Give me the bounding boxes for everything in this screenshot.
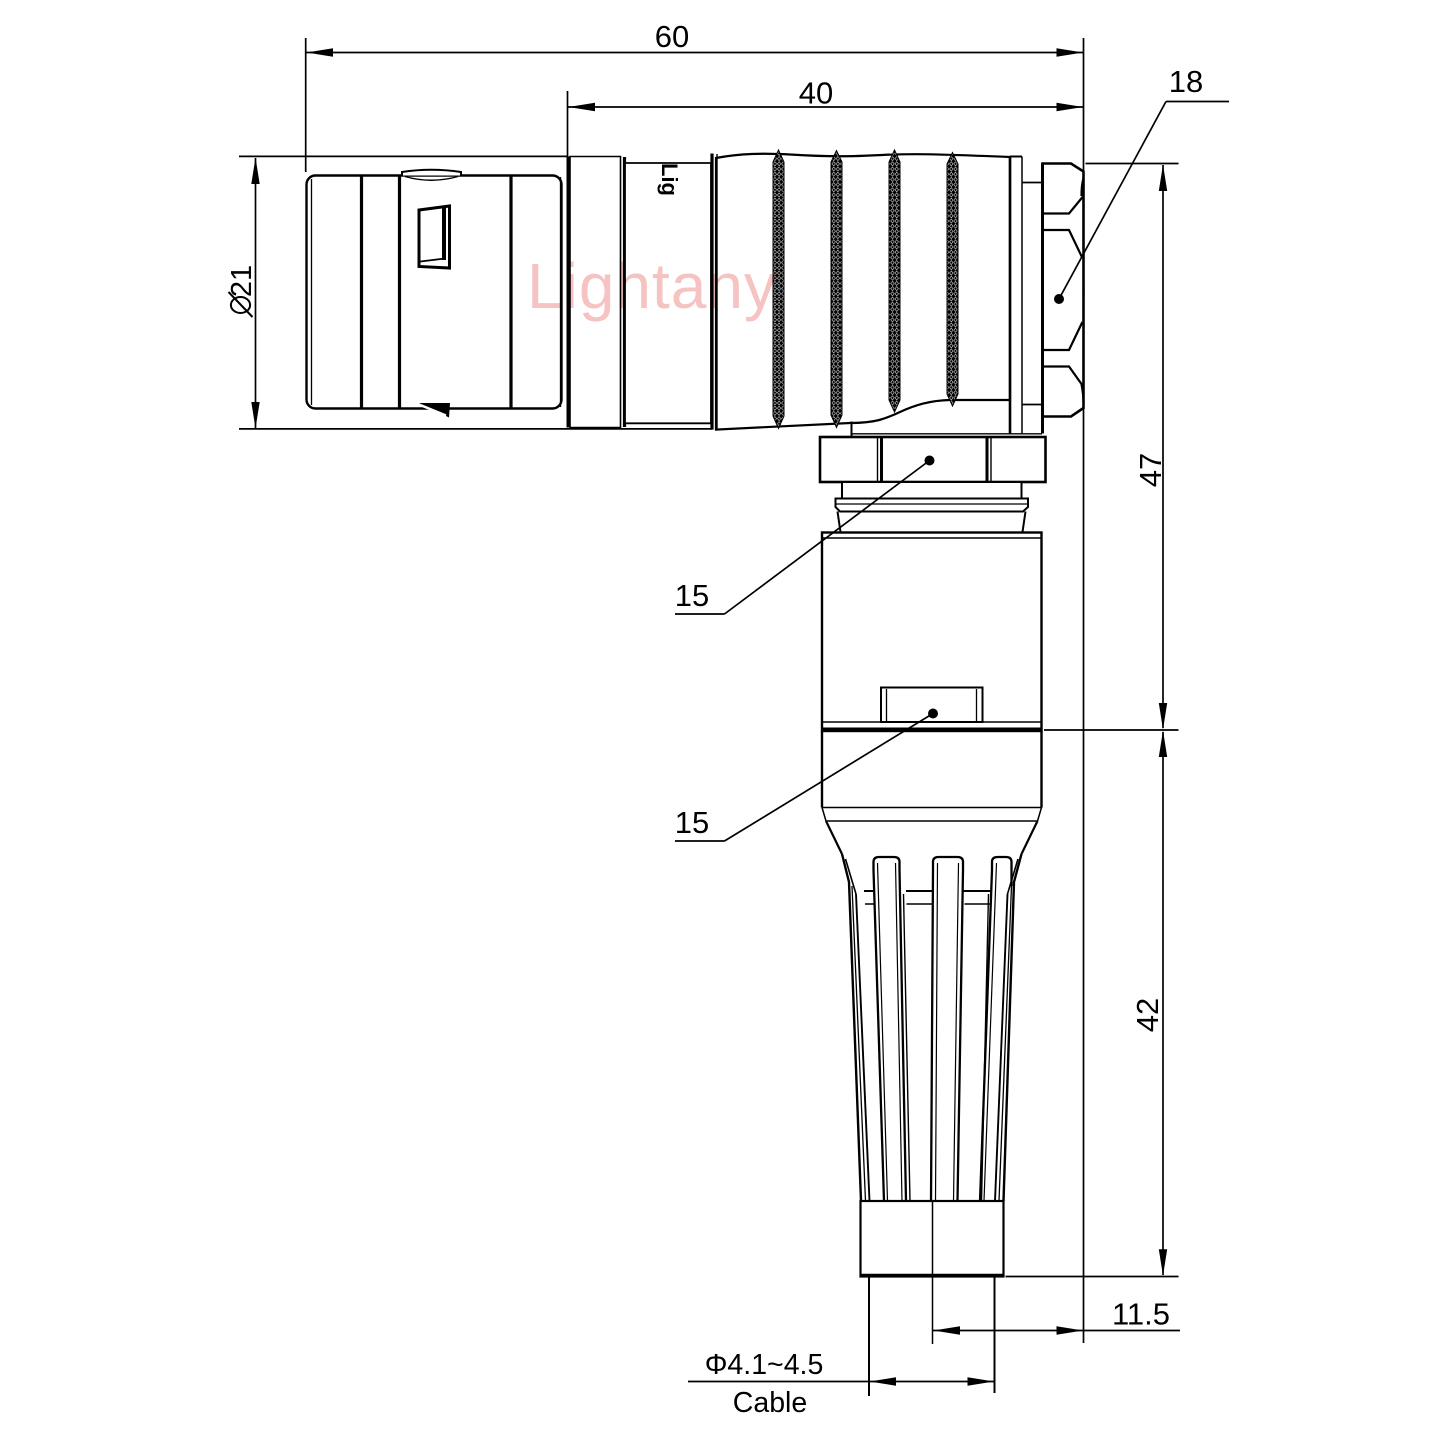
svg-text:18: 18: [1169, 64, 1203, 99]
svg-text:47: 47: [1133, 453, 1168, 487]
svg-text:40: 40: [799, 76, 833, 111]
svg-text:Φ4.1~4.5: Φ4.1~4.5: [705, 1349, 824, 1381]
svg-text:11.5: 11.5: [1112, 1297, 1170, 1332]
svg-text:Cable: Cable: [733, 1387, 807, 1419]
svg-text:Lightany: Lightany: [527, 250, 777, 322]
svg-text:21: 21: [226, 265, 258, 297]
svg-text:15: 15: [675, 578, 709, 613]
svg-text:Lig: Lig: [657, 163, 682, 196]
svg-text:42: 42: [1130, 998, 1165, 1032]
svg-text:60: 60: [655, 19, 689, 54]
svg-text:15: 15: [675, 805, 709, 840]
